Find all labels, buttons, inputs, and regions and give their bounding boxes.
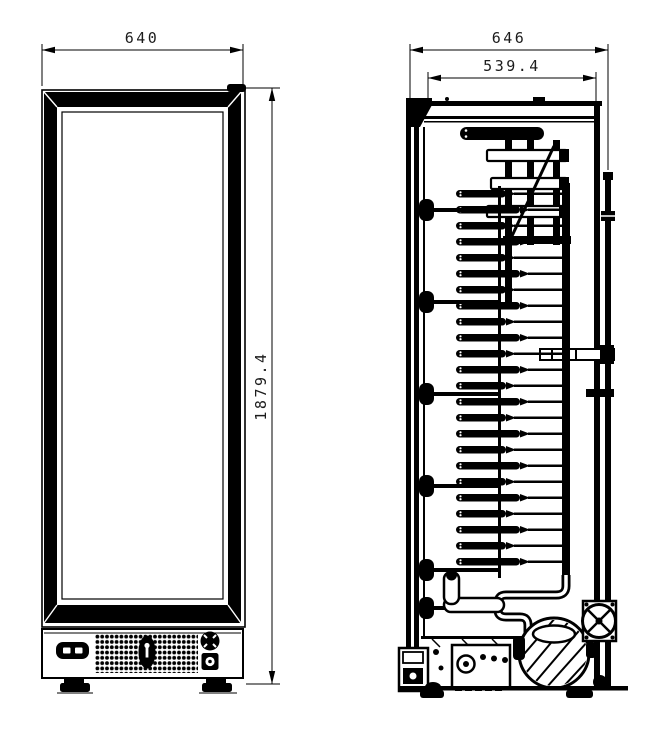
front-view bbox=[42, 84, 246, 693]
dim-text-front-width: 640 bbox=[125, 29, 160, 47]
front-door-frame bbox=[42, 84, 246, 627]
evaporator-fan-assembly bbox=[460, 127, 571, 306]
dim-text-overall-depth: 646 bbox=[492, 29, 527, 47]
door-lock bbox=[139, 636, 156, 669]
door-hinge-pins bbox=[419, 199, 501, 619]
dim-text-inner-depth: 539.4 bbox=[483, 57, 541, 75]
terminal-box bbox=[433, 645, 510, 691]
side-view bbox=[398, 97, 628, 712]
indicator-light bbox=[202, 653, 219, 670]
front-feet bbox=[57, 678, 237, 693]
dimension-inner-depth: 539.4 bbox=[428, 57, 596, 101]
front-bottom-panel bbox=[42, 629, 243, 678]
evaporator-coil-fins bbox=[456, 183, 570, 579]
side-base-and-feet bbox=[398, 686, 628, 698]
dimension-front-width: 640 bbox=[42, 29, 243, 86]
coil-header bbox=[562, 183, 570, 579]
technical-drawing: 640 1879.4 646 539.4 bbox=[0, 0, 647, 731]
glass-door-pane bbox=[62, 112, 223, 599]
drawing-sheet: 640 1879.4 646 539.4 bbox=[0, 0, 647, 731]
dim-text-overall-height: 1879.4 bbox=[252, 351, 270, 420]
power-inlet bbox=[56, 642, 89, 659]
side-cabinet-top bbox=[406, 97, 602, 106]
thermostat-knob bbox=[201, 632, 220, 651]
dimension-overall-height: 1879.4 bbox=[246, 88, 280, 684]
